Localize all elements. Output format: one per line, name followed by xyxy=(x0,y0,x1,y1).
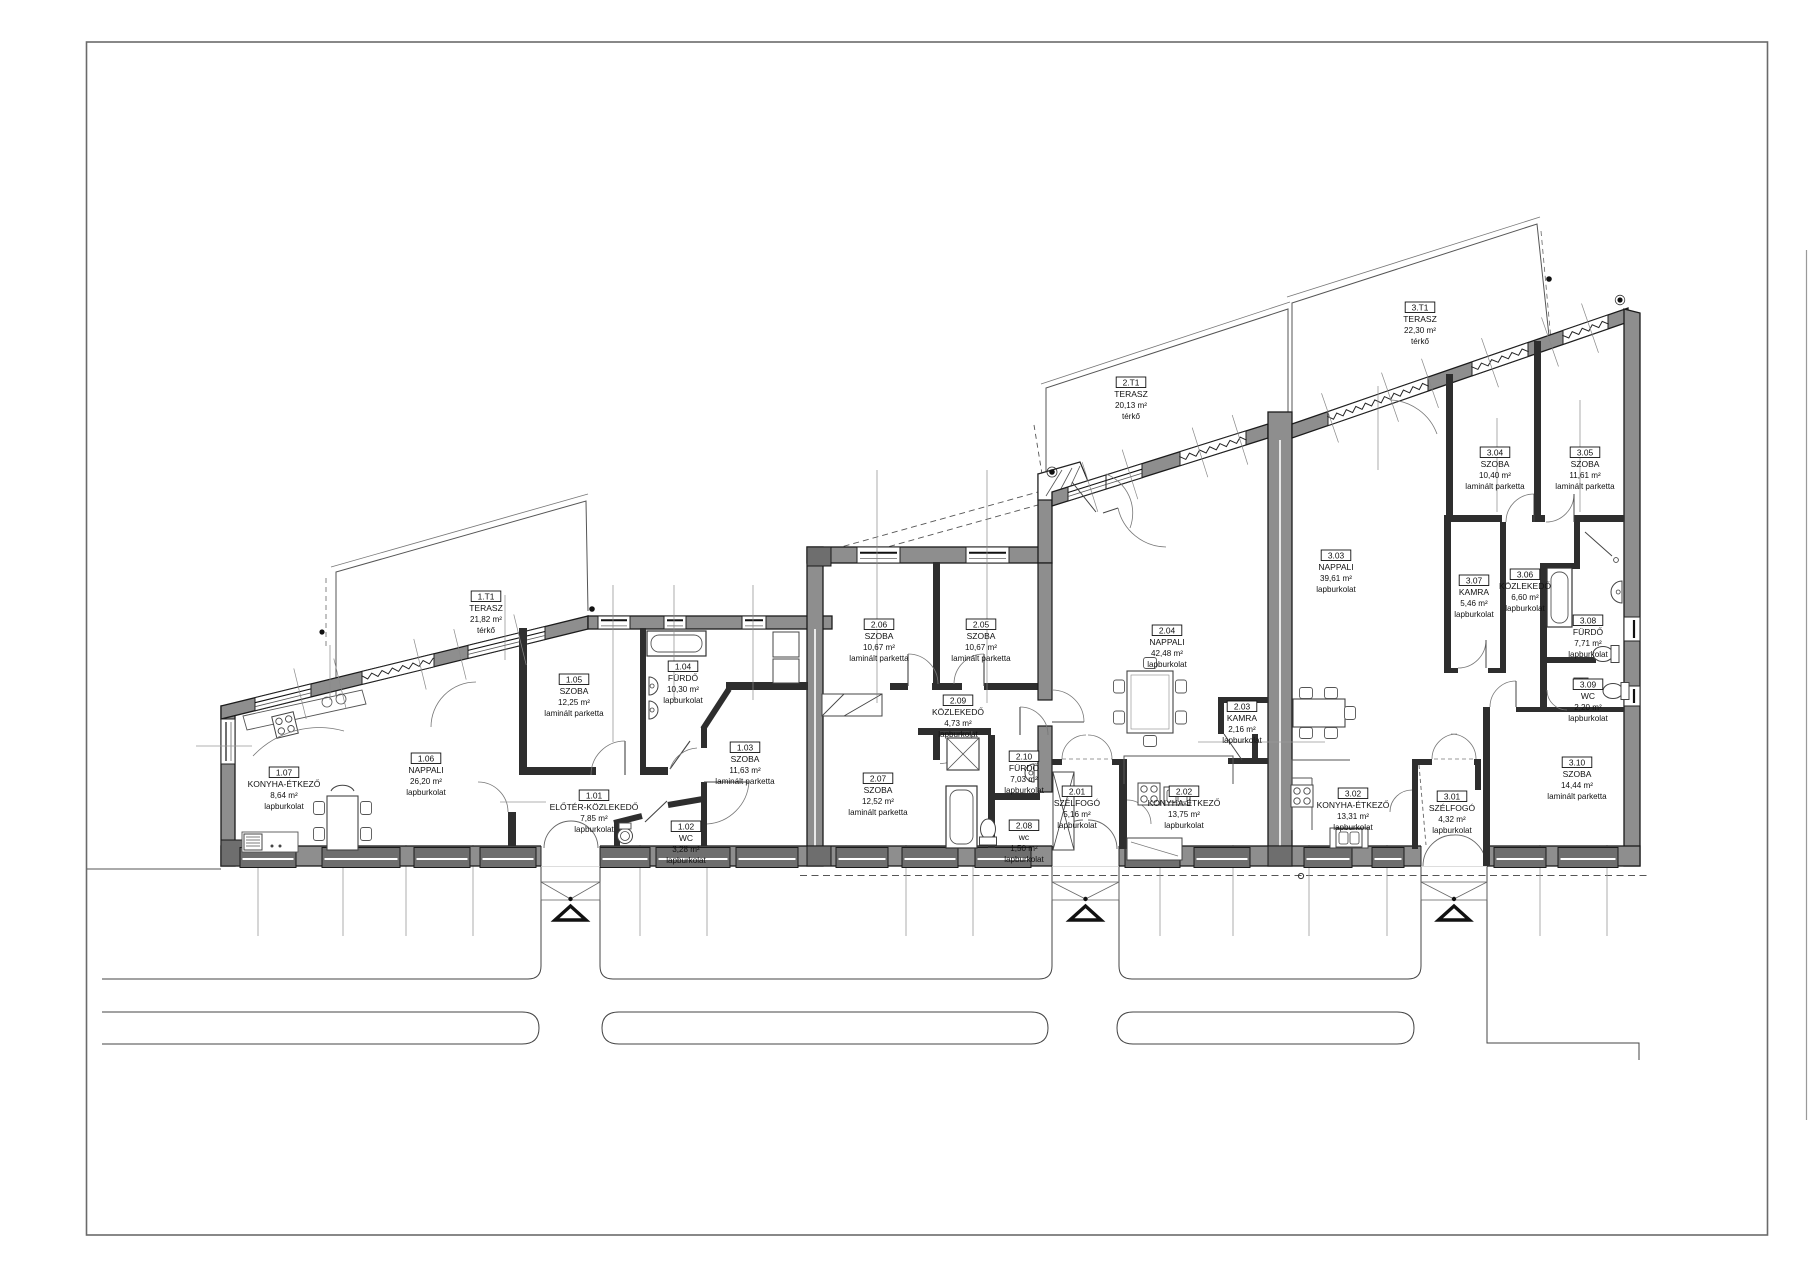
svg-text:laminált parketta: laminált parketta xyxy=(951,654,1011,663)
svg-text:KÖZLEKEDŐ: KÖZLEKEDŐ xyxy=(1499,581,1551,591)
svg-text:2.T1: 2.T1 xyxy=(1123,377,1140,387)
svg-text:NAPPALI: NAPPALI xyxy=(1318,562,1353,572)
svg-text:lapburkolat: lapburkolat xyxy=(1316,585,1356,594)
svg-text:SZOBA: SZOBA xyxy=(560,686,589,696)
svg-text:KONYHA-ÉTKEZŐ: KONYHA-ÉTKEZŐ xyxy=(248,779,321,789)
svg-text:10,67 m²: 10,67 m² xyxy=(863,643,895,652)
svg-text:7,85 m²: 7,85 m² xyxy=(580,814,608,823)
svg-text:KAMRA: KAMRA xyxy=(1459,587,1490,597)
svg-text:2.03: 2.03 xyxy=(1234,701,1251,711)
svg-text:laminált parketta: laminált parketta xyxy=(848,808,908,817)
svg-text:lapburkolat: lapburkolat xyxy=(938,730,978,739)
svg-text:3.09: 3.09 xyxy=(1580,679,1597,689)
svg-text:11,63 m²: 11,63 m² xyxy=(729,766,761,775)
svg-text:laminált parketta: laminált parketta xyxy=(715,777,775,786)
svg-text:42,48 m²: 42,48 m² xyxy=(1151,649,1183,658)
svg-text:4,73 m²: 4,73 m² xyxy=(944,719,972,728)
svg-text:22,30 m²: 22,30 m² xyxy=(1404,326,1436,335)
svg-text:laminált parketta: laminált parketta xyxy=(544,709,604,718)
svg-text:2.09: 2.09 xyxy=(950,695,967,705)
svg-text:5,46 m²: 5,46 m² xyxy=(1460,599,1488,608)
svg-text:lapburkolat: lapburkolat xyxy=(1432,826,1472,835)
svg-text:SZÉLFOGÓ: SZÉLFOGÓ xyxy=(1429,803,1476,813)
svg-text:7,03 m²: 7,03 m² xyxy=(1010,775,1038,784)
svg-text:39,61 m²: 39,61 m² xyxy=(1320,574,1352,583)
svg-text:10,40 m²: 10,40 m² xyxy=(1479,471,1511,480)
svg-text:KÖZLEKEDŐ: KÖZLEKEDŐ xyxy=(932,707,984,717)
svg-text:1.T1: 1.T1 xyxy=(478,591,495,601)
svg-text:1.05: 1.05 xyxy=(566,674,583,684)
svg-text:TERASZ: TERASZ xyxy=(1403,314,1437,324)
svg-text:SZOBA: SZOBA xyxy=(967,631,996,641)
svg-text:KONYHA-ÉTKEZŐ: KONYHA-ÉTKEZŐ xyxy=(1317,800,1390,810)
svg-text:3.08: 3.08 xyxy=(1580,615,1597,625)
svg-text:2.04: 2.04 xyxy=(1159,625,1176,635)
svg-text:lapburkolat: lapburkolat xyxy=(666,856,706,865)
svg-text:KAMRA: KAMRA xyxy=(1227,713,1258,723)
svg-text:2.06: 2.06 xyxy=(871,619,888,629)
svg-text:11,61 m²: 11,61 m² xyxy=(1569,471,1601,480)
svg-text:SZOBA: SZOBA xyxy=(731,754,760,764)
svg-text:1.06: 1.06 xyxy=(418,753,435,763)
svg-text:2,20 m²: 2,20 m² xyxy=(1574,703,1602,712)
svg-text:FÜRDŐ: FÜRDŐ xyxy=(1573,627,1604,637)
svg-text:lapburkolat: lapburkolat xyxy=(1333,823,1373,832)
svg-text:13,75 m²: 13,75 m² xyxy=(1168,810,1200,819)
svg-text:13,31 m²: 13,31 m² xyxy=(1337,812,1369,821)
svg-text:laminált parketta: laminált parketta xyxy=(1547,792,1607,801)
svg-text:SZOBA: SZOBA xyxy=(864,785,893,795)
svg-text:lapburkolat: lapburkolat xyxy=(264,802,304,811)
svg-text:SZÉLFOGÓ: SZÉLFOGÓ xyxy=(1054,798,1101,808)
svg-text:lapburkolat: lapburkolat xyxy=(663,696,703,705)
svg-text:4,32 m²: 4,32 m² xyxy=(1438,815,1466,824)
svg-text:2.07: 2.07 xyxy=(870,773,887,783)
svg-text:12,25 m²: 12,25 m² xyxy=(558,698,590,707)
svg-text:lapburkolat: lapburkolat xyxy=(1147,660,1187,669)
svg-text:TERASZ: TERASZ xyxy=(1114,389,1148,399)
svg-text:1.01: 1.01 xyxy=(586,790,603,800)
svg-text:26,20 m²: 26,20 m² xyxy=(410,777,442,786)
svg-text:8,64 m²: 8,64 m² xyxy=(270,791,298,800)
svg-text:térkő: térkő xyxy=(477,626,495,635)
svg-text:10,30 m²: 10,30 m² xyxy=(667,685,699,694)
svg-text:3.T1: 3.T1 xyxy=(1412,302,1429,312)
svg-text:lapburkolat: lapburkolat xyxy=(1057,821,1097,830)
svg-text:FÜRDŐ: FÜRDŐ xyxy=(668,673,699,683)
svg-text:laminált parketta: laminált parketta xyxy=(1465,482,1525,491)
svg-text:lapburkolat: lapburkolat xyxy=(1164,821,1204,830)
svg-text:KONYHA-ÉTKEZŐ: KONYHA-ÉTKEZŐ xyxy=(1148,798,1221,808)
svg-text:SZOBA: SZOBA xyxy=(1563,769,1592,779)
svg-text:3.02: 3.02 xyxy=(1345,788,1362,798)
svg-text:TERASZ: TERASZ xyxy=(469,603,503,613)
svg-text:10,67 m²: 10,67 m² xyxy=(965,643,997,652)
svg-text:3.10: 3.10 xyxy=(1569,757,1586,767)
svg-text:3,28 m²: 3,28 m² xyxy=(672,845,700,854)
svg-text:térkő: térkő xyxy=(1122,412,1140,421)
svg-text:3.04: 3.04 xyxy=(1487,447,1504,457)
svg-text:lapburkolat: lapburkolat xyxy=(1568,650,1608,659)
svg-text:5,16 m²: 5,16 m² xyxy=(1063,810,1091,819)
svg-text:2.10: 2.10 xyxy=(1016,751,1033,761)
svg-text:1,50 m²: 1,50 m² xyxy=(1010,844,1038,853)
svg-text:WC: WC xyxy=(1581,691,1595,701)
svg-text:NAPPALI: NAPPALI xyxy=(1149,637,1184,647)
svg-text:20,13 m²: 20,13 m² xyxy=(1115,401,1147,410)
svg-text:2.05: 2.05 xyxy=(973,619,990,629)
svg-text:2.01: 2.01 xyxy=(1069,786,1086,796)
svg-text:6,60 m²: 6,60 m² xyxy=(1511,593,1539,602)
svg-text:2.08: 2.08 xyxy=(1016,820,1033,830)
svg-text:3.05: 3.05 xyxy=(1577,447,1594,457)
svg-text:3.06: 3.06 xyxy=(1517,569,1534,579)
svg-text:2,16 m²: 2,16 m² xyxy=(1228,725,1256,734)
svg-text:lapburkolat: lapburkolat xyxy=(574,825,614,834)
svg-text:lapburkolat: lapburkolat xyxy=(1004,786,1044,795)
svg-text:3.07: 3.07 xyxy=(1466,575,1483,585)
svg-text:1.04: 1.04 xyxy=(675,661,692,671)
svg-text:1.07: 1.07 xyxy=(276,767,293,777)
svg-text:SZOBA: SZOBA xyxy=(1571,459,1600,469)
svg-text:laminált parketta: laminált parketta xyxy=(849,654,909,663)
svg-text:1.02: 1.02 xyxy=(678,821,695,831)
svg-text:lapburkolat: lapburkolat xyxy=(1505,604,1545,613)
svg-text:14,44 m²: 14,44 m² xyxy=(1561,781,1593,790)
svg-text:lapburkolat: lapburkolat xyxy=(1004,855,1044,864)
svg-text:1.03: 1.03 xyxy=(737,742,754,752)
svg-text:2.02: 2.02 xyxy=(1176,786,1193,796)
svg-text:SZOBA: SZOBA xyxy=(865,631,894,641)
svg-text:21,82 m²: 21,82 m² xyxy=(470,615,502,624)
svg-text:7,71 m²: 7,71 m² xyxy=(1574,639,1602,648)
svg-text:lapburkolat: lapburkolat xyxy=(406,788,446,797)
svg-text:lapburkolat: lapburkolat xyxy=(1454,610,1494,619)
svg-text:WC: WC xyxy=(679,833,693,843)
svg-text:wc: wc xyxy=(1018,832,1030,842)
svg-text:3.03: 3.03 xyxy=(1328,550,1345,560)
svg-text:térkő: térkő xyxy=(1411,337,1429,346)
svg-text:lapburkolat: lapburkolat xyxy=(1222,736,1262,745)
svg-text:FÜRDŐ: FÜRDŐ xyxy=(1009,763,1040,773)
svg-text:laminált parketta: laminált parketta xyxy=(1555,482,1615,491)
svg-text:12,52 m²: 12,52 m² xyxy=(862,797,894,806)
svg-text:ELŐTÉR-KÖZLEKEDŐ: ELŐTÉR-KÖZLEKEDŐ xyxy=(550,802,639,812)
svg-text:SZOBA: SZOBA xyxy=(1481,459,1510,469)
svg-text:lapburkolat: lapburkolat xyxy=(1568,714,1608,723)
svg-text:3.01: 3.01 xyxy=(1444,791,1461,801)
svg-text:NAPPALI: NAPPALI xyxy=(408,765,443,775)
